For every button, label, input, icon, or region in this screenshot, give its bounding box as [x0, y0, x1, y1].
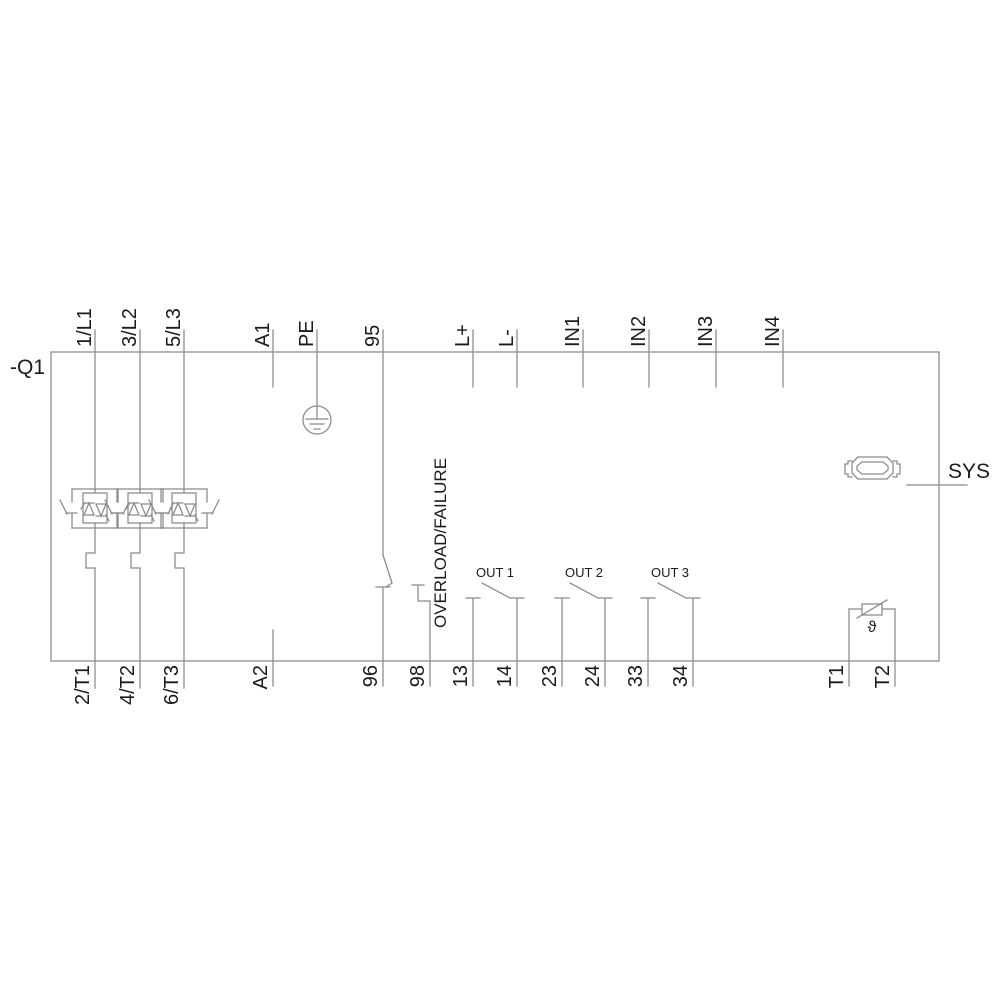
terminal-label-24: 24 — [582, 665, 604, 687]
phase-module-l3 — [149, 330, 219, 688]
temperature-symbol: ϑ — [868, 619, 877, 636]
phase-module-l2 — [105, 330, 175, 688]
terminal-label-14: 14 — [494, 665, 516, 687]
terminal-label-98: 98 — [407, 665, 429, 687]
terminal-label-95: 95 — [362, 325, 384, 347]
terminal-label-34: 34 — [670, 665, 692, 687]
terminal-label-1l1: 1/L1 — [74, 308, 96, 347]
soft-starter-wiring-diagram: -Q1 1/L1 3/L2 5/L3 A1 PE 95 L+ L- IN1 IN… — [0, 0, 1000, 1000]
device-tag: -Q1 — [10, 356, 45, 379]
sys-interface: SYS — [845, 457, 990, 485]
phase-module-l1 — [60, 330, 130, 688]
terminal-label-t2: T2 — [872, 665, 894, 688]
terminal-label-lplus: L+ — [452, 324, 474, 347]
sys-label: SYS — [948, 460, 990, 483]
terminal-label-6t3: 6/T3 — [161, 665, 183, 705]
overload-changeover-contact — [376, 330, 430, 686]
terminal-label-23: 23 — [539, 665, 561, 687]
bottom-terminal-labels: 2/T1 4/T2 6/T3 A2 96 98 13 14 23 24 33 3… — [72, 665, 894, 705]
out3-label: OUT 3 — [651, 565, 689, 580]
current-notch-l3 — [175, 523, 184, 688]
terminal-label-2t1: 2/T1 — [72, 665, 94, 705]
terminal-label-in2: IN2 — [628, 316, 650, 347]
system-connector-icon — [845, 457, 900, 479]
terminal-label-5l3: 5/L3 — [163, 308, 185, 347]
contact-arm-out3 — [658, 583, 686, 598]
terminal-label-lminus: L- — [496, 329, 518, 347]
terminal-label-pe: PE — [296, 320, 318, 347]
thermistor-icon — [857, 600, 887, 618]
overload-failure-label: OVERLOAD/FAILURE — [431, 458, 450, 628]
terminal-label-in3: IN3 — [695, 316, 717, 347]
terminal-label-a1: A1 — [252, 323, 274, 347]
terminal-label-a2: A2 — [250, 665, 272, 689]
terminal-label-3l2: 3/L2 — [119, 308, 141, 347]
terminal-label-in4: IN4 — [762, 316, 784, 347]
terminal-label-33: 33 — [625, 665, 647, 687]
current-notch-l1 — [86, 523, 95, 688]
terminal-label-13: 13 — [450, 665, 472, 687]
out1-label: OUT 1 — [476, 565, 514, 580]
terminal-label-in1: IN1 — [562, 316, 584, 347]
current-notch-l2 — [131, 523, 140, 688]
out2-label: OUT 2 — [565, 565, 603, 580]
terminal-label-4t2: 4/T2 — [117, 665, 139, 705]
contact-arm-out2 — [570, 583, 598, 598]
changeover-arm — [383, 555, 392, 587]
terminal-label-t1: T1 — [826, 665, 848, 688]
top-terminal-labels: 1/L1 3/L2 5/L3 A1 PE 95 L+ L- IN1 IN2 IN… — [74, 308, 784, 347]
contact-arm-out1 — [482, 583, 510, 598]
terminal-label-96: 96 — [360, 665, 382, 687]
